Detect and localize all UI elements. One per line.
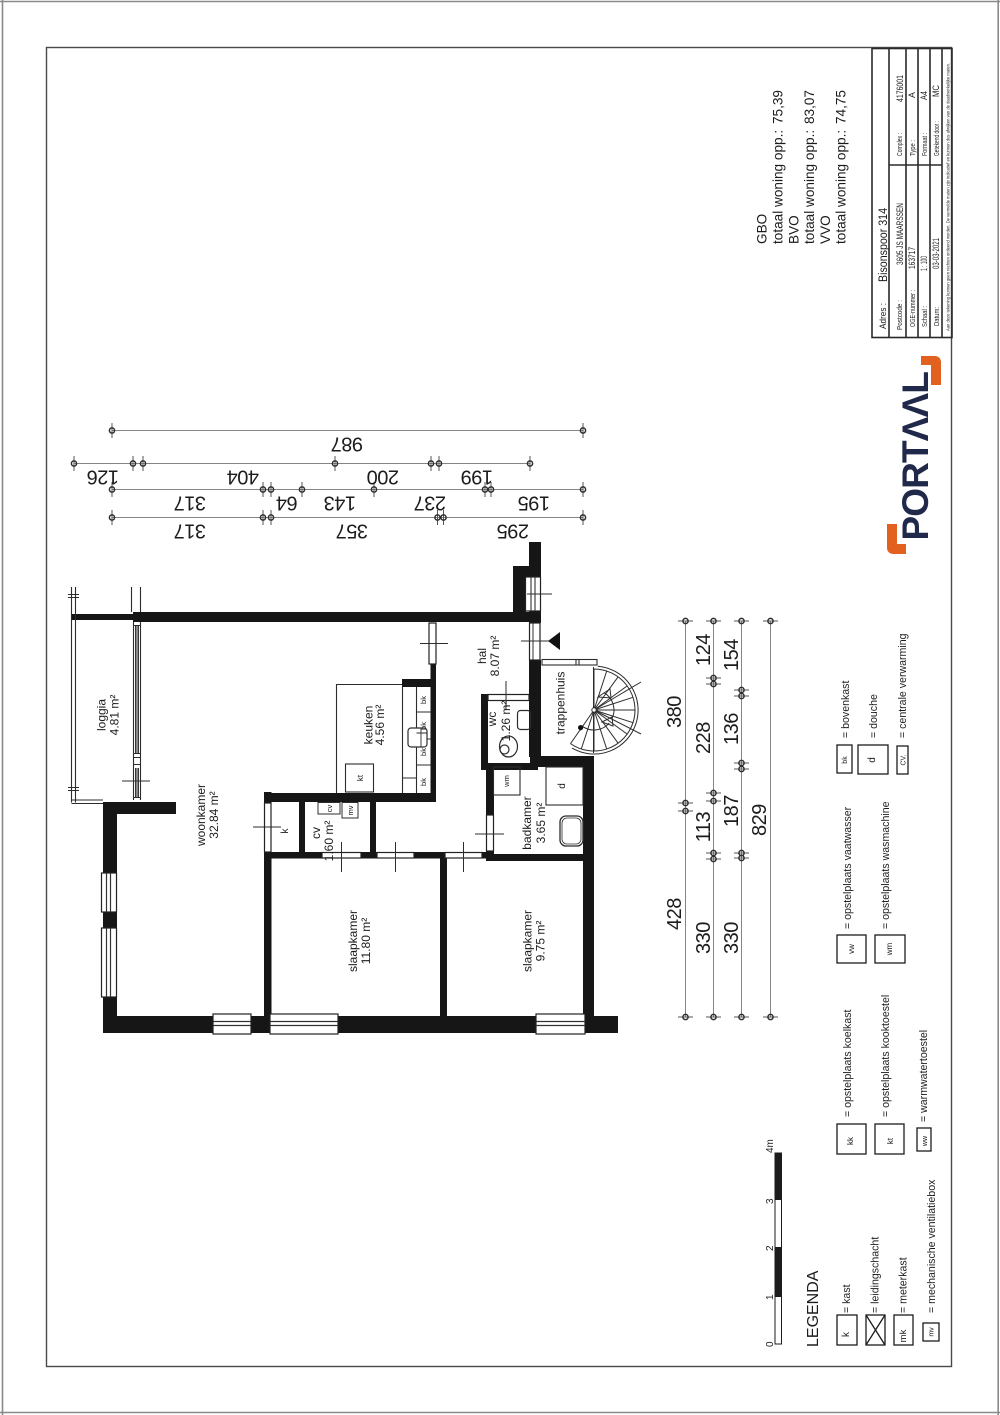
svg-text:BVO: BVO <box>786 215 801 244</box>
svg-text:330: 330 <box>693 922 715 954</box>
svg-text:199: 199 <box>461 466 493 488</box>
svg-text:= douche: = douche <box>868 694 880 738</box>
svg-text:Bisonspoor 314: Bisonspoor 314 <box>878 207 890 282</box>
svg-text:bk: bk <box>419 722 428 730</box>
svg-text:124: 124 <box>693 634 715 666</box>
svg-text:= centrale verwarming: = centrale verwarming <box>897 633 909 738</box>
svg-text:317: 317 <box>174 492 206 514</box>
svg-text:badkamer: badkamer <box>520 796 534 849</box>
svg-text:cv: cv <box>309 827 323 839</box>
svg-text:195: 195 <box>518 492 550 514</box>
svg-text:LEGENDA: LEGENDA <box>805 1270 822 1347</box>
svg-text:Type :: Type : <box>908 140 917 156</box>
svg-text:83,07: 83,07 <box>802 90 817 124</box>
svg-text:75,39: 75,39 <box>771 90 786 124</box>
svg-text:4m: 4m <box>765 1139 776 1153</box>
svg-text:cv: cv <box>325 805 334 813</box>
svg-text:vw: vw <box>847 944 856 954</box>
svg-text:bk: bk <box>419 696 428 704</box>
svg-text:829: 829 <box>749 804 771 836</box>
svg-text:Schaal :: Schaal : <box>920 306 929 327</box>
svg-text:MC: MC <box>931 84 941 97</box>
svg-text:trappenhuis: trappenhuis <box>554 672 568 735</box>
svg-text:113: 113 <box>693 811 715 842</box>
svg-text:kt: kt <box>356 774 365 781</box>
svg-text:295: 295 <box>497 520 529 542</box>
svg-text:3: 3 <box>765 1198 776 1204</box>
svg-text:1.26 m²: 1.26 m² <box>499 701 513 742</box>
svg-text:Formaat :: Formaat : <box>920 133 929 156</box>
svg-text:woonkamer: woonkamer <box>194 784 208 847</box>
svg-text:228: 228 <box>693 722 715 754</box>
svg-text:= opstelplaats kooktoestel: = opstelplaats kooktoestel <box>880 995 892 1117</box>
svg-text:totaal woning opp.:: totaal woning opp.: <box>802 130 817 244</box>
svg-text:hal: hal <box>475 648 489 664</box>
svg-text:9.75 m²: 9.75 m² <box>534 921 548 962</box>
svg-text:Aan deze tekening kunnen geen: Aan deze tekening kunnen geen rechten on… <box>946 63 951 331</box>
svg-text:kt: kt <box>886 1137 895 1144</box>
svg-text:d: d <box>557 783 568 789</box>
svg-text:1.60 m²: 1.60 m² <box>322 821 336 862</box>
svg-text:3.65 m²: 3.65 m² <box>534 803 548 844</box>
svg-text:wc: wc <box>485 712 499 728</box>
svg-text:380: 380 <box>664 696 686 728</box>
svg-text:= opstelplaats wasmachine: = opstelplaats wasmachine <box>880 801 892 929</box>
svg-text:8.07 m²: 8.07 m² <box>488 636 502 677</box>
svg-text:slaapkamer: slaapkamer <box>346 910 360 972</box>
svg-text:= mechanische ventilatiebox: = mechanische ventilatiebox <box>926 1179 938 1313</box>
svg-text:330: 330 <box>721 922 743 954</box>
svg-text:200: 200 <box>367 466 399 488</box>
svg-text:Complex :: Complex : <box>895 133 904 156</box>
svg-text:317: 317 <box>174 520 206 542</box>
svg-text:= opstelplaats koelkast: = opstelplaats koelkast <box>842 1009 854 1117</box>
svg-text:74,75: 74,75 <box>834 90 849 124</box>
svg-text:= leidingschacht: = leidingschacht <box>870 1237 882 1313</box>
svg-text:154: 154 <box>721 639 743 671</box>
svg-text:187: 187 <box>721 795 743 827</box>
svg-text:= warmwatertoestel: = warmwatertoestel <box>918 1030 930 1122</box>
svg-text:slaapkamer: slaapkamer <box>521 910 535 972</box>
svg-text:VVO: VVO <box>818 215 833 244</box>
svg-text:163717: 163717 <box>907 247 917 269</box>
svg-text:= kast: = kast <box>841 1284 853 1313</box>
svg-text:mv: mv <box>346 805 355 815</box>
svg-text:= opstelplaats vaatwasser: = opstelplaats vaatwasser <box>842 806 854 929</box>
svg-text:11.80 m²: 11.80 m² <box>359 918 373 964</box>
svg-text:mv: mv <box>929 1327 936 1337</box>
svg-text:totaal woning opp.:: totaal woning opp.: <box>834 130 849 244</box>
svg-text:wm: wm <box>502 775 511 788</box>
svg-text:totaal woning opp.:: totaal woning opp.: <box>771 130 786 244</box>
svg-text:kk: kk <box>846 1136 855 1145</box>
svg-text:428: 428 <box>664 898 686 930</box>
svg-text:bk: bk <box>419 778 428 786</box>
svg-text:136: 136 <box>721 713 743 745</box>
svg-text:Getekend door :: Getekend door : <box>932 121 941 156</box>
svg-text:1: 1 <box>765 1294 776 1300</box>
svg-text:loggia: loggia <box>95 699 109 731</box>
svg-text:OGE-nummer :: OGE-nummer : <box>908 290 917 327</box>
svg-text:ww: ww <box>922 1135 929 1147</box>
svg-text:wm: wm <box>885 942 894 956</box>
svg-text:= meterkast: = meterkast <box>898 1257 910 1313</box>
svg-text:03-03-2021: 03-03-2021 <box>931 238 941 269</box>
svg-text:987: 987 <box>331 432 363 454</box>
svg-text:126: 126 <box>87 466 119 488</box>
svg-text:3605 JS MAARSSEN: 3605 JS MAARSSEN <box>895 203 905 265</box>
svg-text:= bovenkast: = bovenkast <box>840 681 852 738</box>
svg-text:A4: A4 <box>919 91 929 100</box>
svg-text:GBO: GBO <box>755 214 770 244</box>
svg-text:4176001: 4176001 <box>895 75 905 102</box>
svg-text:357: 357 <box>336 520 368 542</box>
svg-text:A: A <box>907 92 917 98</box>
svg-text:Adres :: Adres : <box>878 303 888 329</box>
svg-text:143: 143 <box>324 492 356 514</box>
svg-text:bk: bk <box>842 756 849 764</box>
svg-text:404: 404 <box>227 466 259 488</box>
svg-text:4.81 m²: 4.81 m² <box>108 695 122 736</box>
svg-text:bk: bk <box>419 748 428 756</box>
svg-text:CV.: CV. <box>901 754 908 765</box>
svg-text:64: 64 <box>276 492 298 514</box>
svg-text:0: 0 <box>765 1341 776 1347</box>
svg-text:PORTΛΛL: PORTΛΛL <box>895 372 936 541</box>
svg-text:32.84 m²: 32.84 m² <box>207 791 221 838</box>
svg-text:Datum:: Datum: <box>932 307 941 326</box>
svg-text:237: 237 <box>414 492 446 514</box>
svg-text:mk: mk <box>898 1329 909 1342</box>
svg-text:Postcode :: Postcode : <box>895 300 904 330</box>
svg-text:1 : 100: 1 : 100 <box>919 256 929 271</box>
svg-text:2: 2 <box>765 1245 776 1251</box>
svg-text:4.56 m²: 4.56 m² <box>373 705 387 746</box>
svg-text:d: d <box>867 757 878 763</box>
